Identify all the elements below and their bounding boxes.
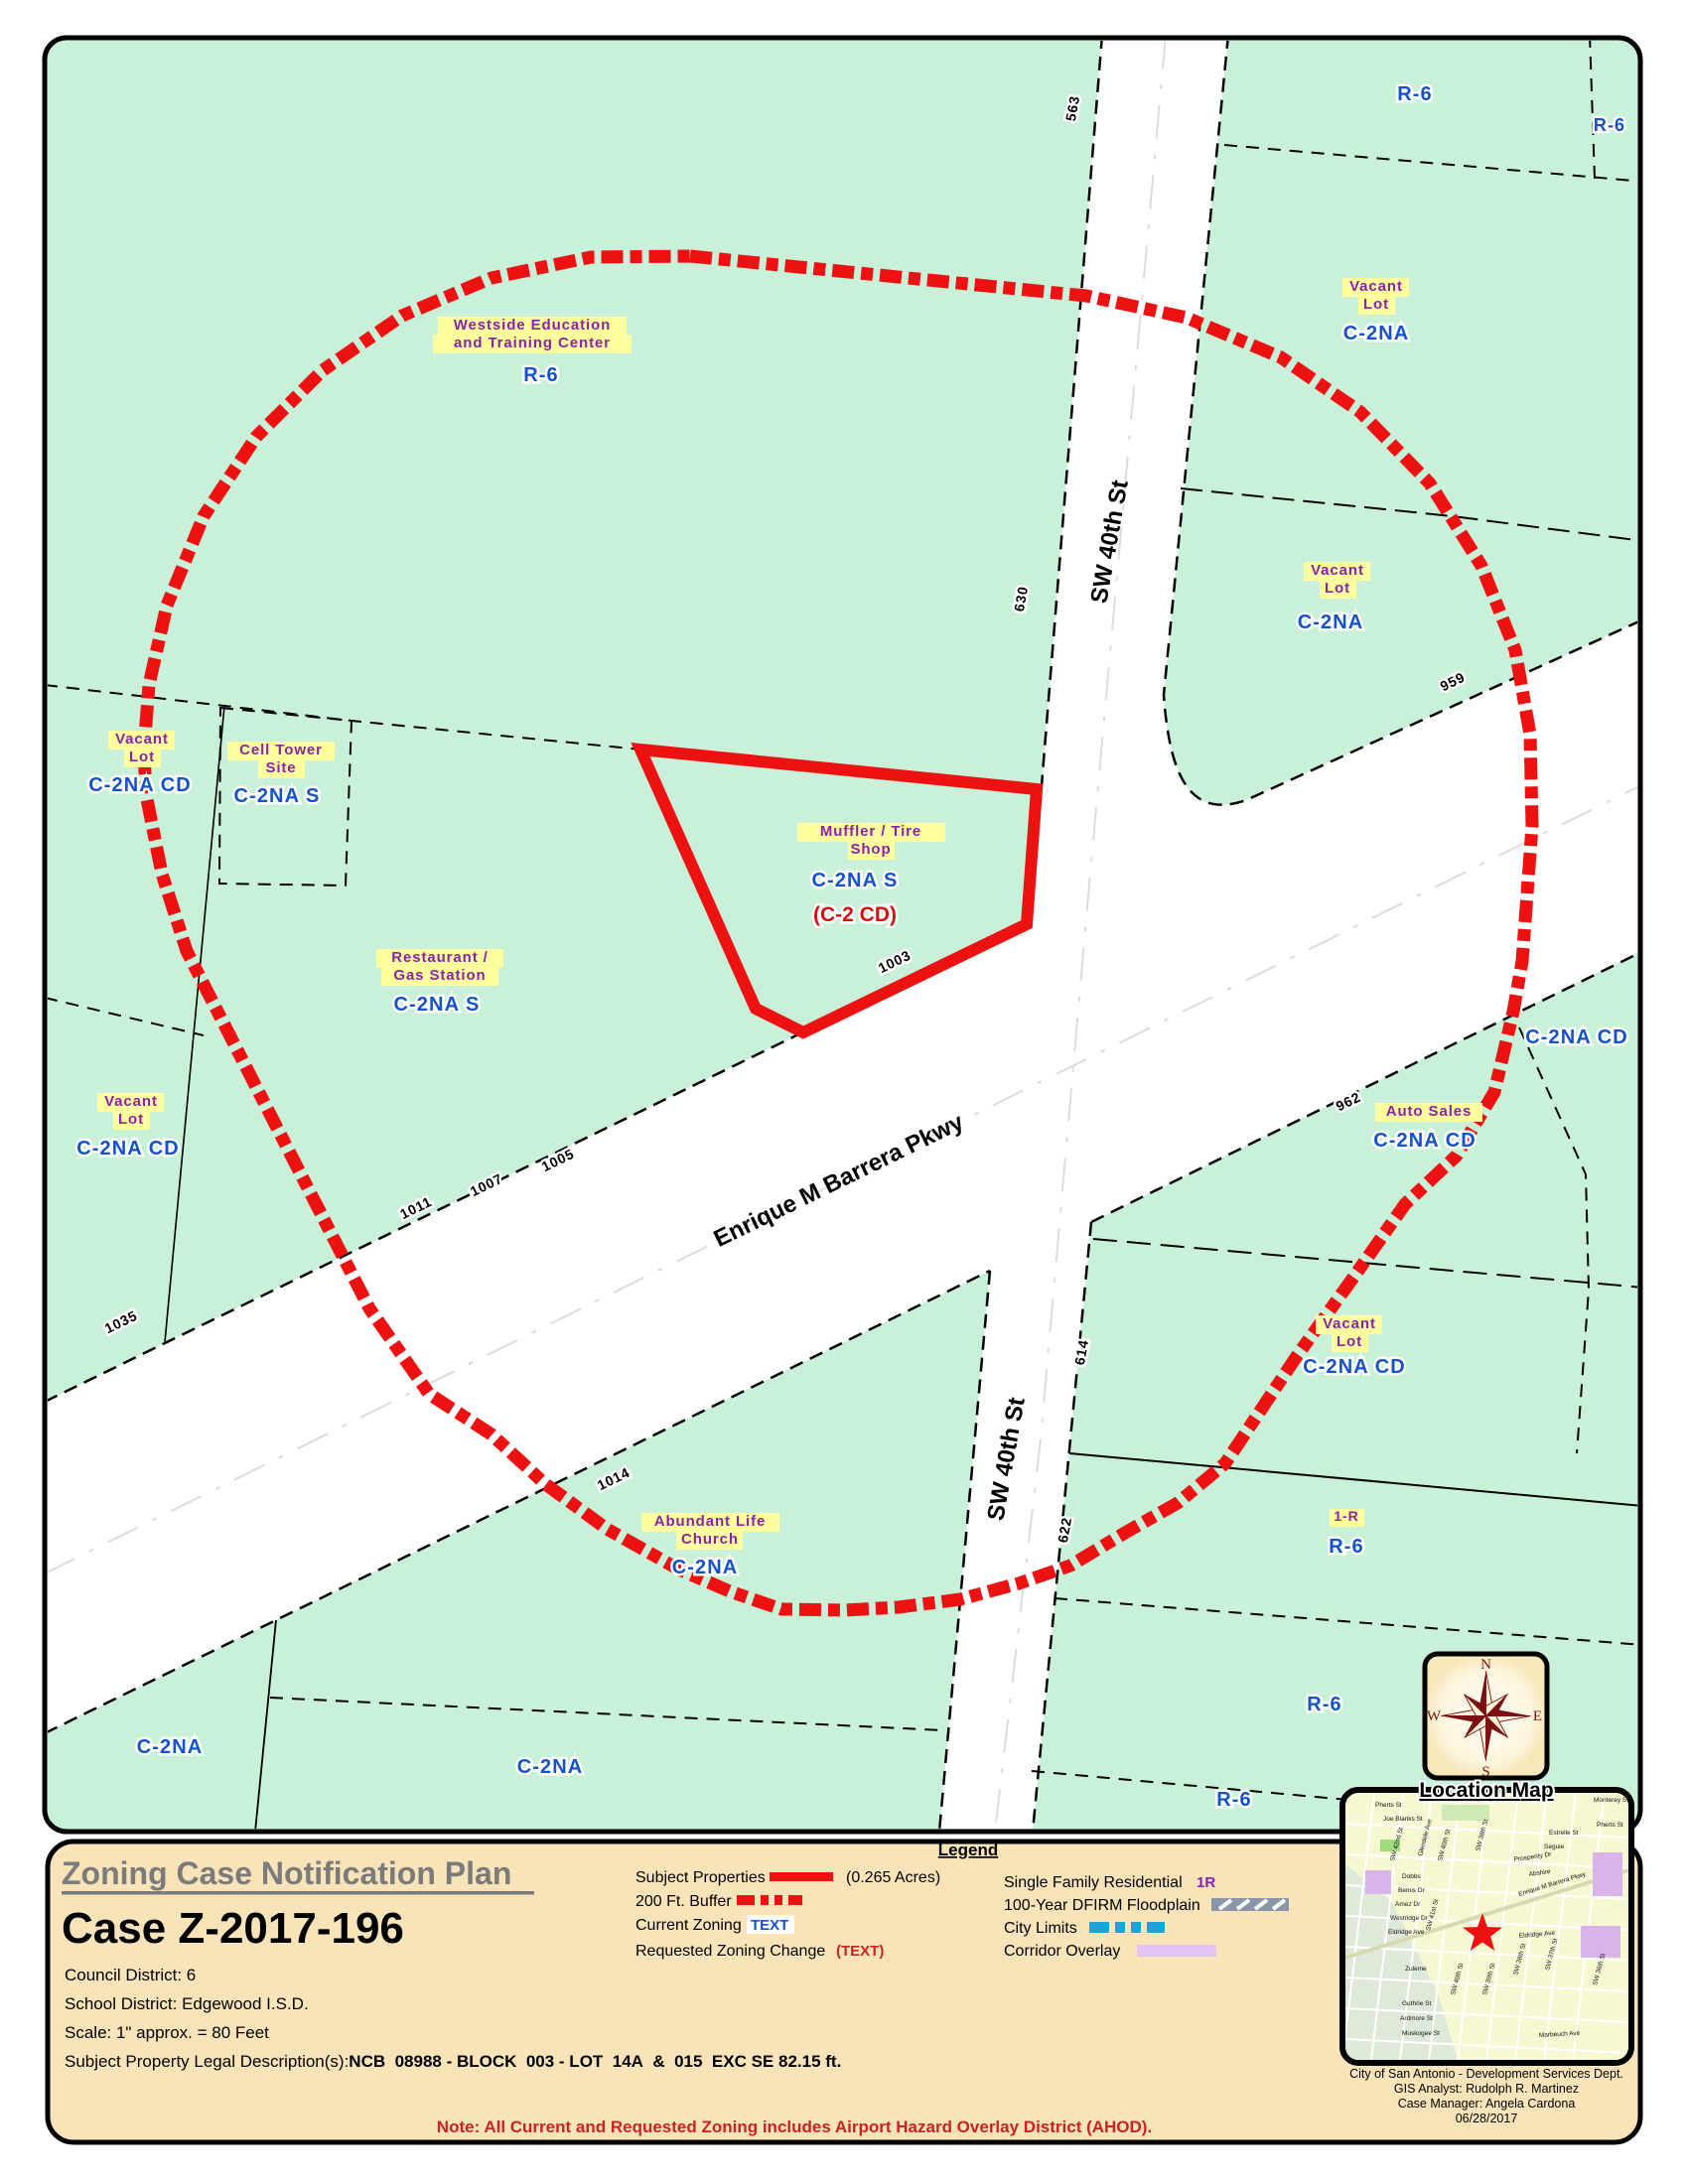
svg-text:C-2NA CD: C-2NA CD	[1373, 1130, 1477, 1152]
svg-text:Lot: Lot	[1336, 1333, 1362, 1350]
svg-text:Vacant: Vacant	[115, 731, 169, 748]
svg-text:W: W	[1427, 1708, 1442, 1724]
svg-text:School District: Edgewood I.S.: School District: Edgewood I.S.D.	[65, 1994, 309, 2013]
svg-text:Dobbs: Dobbs	[1402, 1873, 1422, 1880]
svg-text:Zuleme: Zuleme	[1405, 1966, 1427, 1973]
svg-text:and Training Center: and Training Center	[454, 335, 611, 351]
svg-text:(0.265 Acres): (0.265 Acres)	[846, 1869, 940, 1886]
svg-text:Lot: Lot	[129, 749, 155, 765]
svg-text:City Limits: City Limits	[1004, 1920, 1077, 1937]
svg-text:Case Manager: Angela Cardona: Case Manager: Angela Cardona	[1398, 2097, 1576, 2111]
svg-text:Muffler / Tire: Muffler / Tire	[820, 823, 921, 840]
svg-text:C-2NA CD: C-2NA CD	[88, 774, 192, 796]
svg-text:C-2NA: C-2NA	[1298, 612, 1364, 633]
svg-text:C-2NA: C-2NA	[137, 1736, 204, 1758]
svg-text:R-6: R-6	[1216, 1789, 1252, 1811]
svg-text:Requested Zoning Change: Requested Zoning Change	[635, 1943, 825, 1960]
svg-text:Shop: Shop	[850, 841, 891, 858]
svg-text:200 Ft. Buffer: 200 Ft. Buffer	[635, 1893, 732, 1910]
svg-text:C-2NA S: C-2NA S	[812, 870, 899, 891]
svg-text:R-6: R-6	[1307, 1694, 1342, 1715]
svg-text:C-2NA: C-2NA	[1343, 323, 1410, 344]
svg-text:Single Family Residential: Single Family Residential	[1004, 1874, 1183, 1891]
svg-text:Church: Church	[681, 1531, 739, 1548]
svg-text:C-2NA CD: C-2NA CD	[1303, 1356, 1406, 1378]
svg-text:Seguie: Seguie	[1544, 1843, 1565, 1850]
svg-text:06/28/2017: 06/28/2017	[1456, 2112, 1518, 2125]
svg-text:Note: All Current and Requeste: Note: All Current and Requested Zoning i…	[437, 2117, 1152, 2136]
svg-text:Current Zoning: Current Zoning	[635, 1917, 742, 1934]
svg-text:(TEXT): (TEXT)	[836, 1943, 884, 1960]
svg-text:N: N	[1480, 1657, 1491, 1673]
svg-text:Auto Sales: Auto Sales	[1386, 1103, 1473, 1120]
svg-text:Zoning Case Notification Plan: Zoning Case Notification Plan	[62, 1855, 511, 1891]
svg-text:Vacant: Vacant	[1349, 278, 1403, 295]
svg-text:Eldridge Ave: Eldridge Ave	[1388, 1929, 1425, 1936]
svg-text:City of San Antonio - Developm: City of San Antonio - Development Servic…	[1349, 2067, 1623, 2081]
svg-text:Muskogee St: Muskogee St	[1402, 2030, 1440, 2037]
svg-text:C-2NA S: C-2NA S	[234, 785, 321, 807]
svg-text:Legend: Legend	[938, 1841, 998, 1859]
svg-text:Ardmore St: Ardmore St	[1400, 2015, 1433, 2022]
svg-text:Bemis Dr: Bemis Dr	[1398, 1887, 1426, 1894]
svg-text:100-Year DFIRM Floodplain: 100-Year DFIRM Floodplain	[1004, 1897, 1200, 1914]
svg-text:Site: Site	[265, 759, 296, 776]
svg-text:Vacant: Vacant	[104, 1093, 158, 1110]
svg-text:TEXT: TEXT	[751, 1917, 788, 1934]
svg-text:Abundant Life: Abundant Life	[654, 1513, 767, 1530]
svg-text:Monterey St: Monterey St	[1594, 1797, 1628, 1804]
svg-text:Subject Property Legal Descrip: Subject Property Legal Description(s):NC…	[65, 2052, 841, 2071]
svg-text:1-R: 1-R	[1334, 1508, 1358, 1524]
svg-text:Westside Education: Westside Education	[454, 317, 611, 334]
svg-text:Case Z-2017-196: Case Z-2017-196	[62, 1904, 404, 1953]
svg-text:Guthrie St: Guthrie St	[1402, 2000, 1431, 2007]
svg-text:R-6: R-6	[523, 364, 559, 386]
svg-text:(C-2 CD): (C-2 CD)	[813, 903, 897, 926]
svg-text:Location Map: Location Map	[1419, 1779, 1553, 1802]
svg-text:Lot: Lot	[1325, 580, 1350, 597]
svg-text:Amez Dr: Amez Dr	[1395, 1901, 1421, 1908]
svg-text:C-2NA CD: C-2NA CD	[76, 1138, 180, 1160]
svg-text:C-2NA: C-2NA	[672, 1557, 739, 1578]
svg-text:S: S	[1481, 1764, 1489, 1780]
svg-text:Gas Station: Gas Station	[393, 967, 486, 984]
svg-text:Vacant: Vacant	[1311, 562, 1364, 579]
svg-text:C-2NA: C-2NA	[517, 1756, 584, 1778]
svg-text:Restaurant /: Restaurant /	[391, 949, 489, 966]
svg-text:Cell Tower: Cell Tower	[239, 742, 323, 758]
svg-text:E: E	[1533, 1708, 1542, 1724]
svg-text:GIS Analyst: Rudolph R. Martin: GIS Analyst: Rudolph R. Martinez	[1394, 2082, 1579, 2096]
svg-text:C-2NA S: C-2NA S	[394, 994, 481, 1016]
svg-text:Joe Blanks St: Joe Blanks St	[1383, 1816, 1423, 1823]
svg-text:Estrelle St: Estrelle St	[1549, 1830, 1579, 1837]
svg-text:Corridor Overlay: Corridor Overlay	[1004, 1943, 1120, 1960]
svg-text:1R: 1R	[1196, 1874, 1215, 1891]
svg-text:Lot: Lot	[1363, 296, 1389, 313]
svg-text:R-6: R-6	[1397, 83, 1433, 105]
svg-text:R-6: R-6	[1329, 1536, 1364, 1558]
svg-text:Scale: 1" approx. = 80 Feet: Scale: 1" approx. = 80 Feet	[65, 2023, 269, 2042]
svg-text:Pherts St: Pherts St	[1375, 1802, 1402, 1809]
svg-text:Subject Properties: Subject Properties	[635, 1869, 766, 1886]
svg-text:Pherts St: Pherts St	[1597, 1822, 1623, 1829]
svg-text:Council District: 6: Council District: 6	[65, 1966, 196, 1984]
svg-text:Vacant: Vacant	[1323, 1315, 1376, 1332]
svg-text:Lot: Lot	[118, 1111, 144, 1128]
svg-text:R-6: R-6	[1594, 115, 1625, 135]
svg-text:Westridge Dr: Westridge Dr	[1390, 1915, 1429, 1922]
svg-text:C-2NA CD: C-2NA CD	[1525, 1026, 1628, 1048]
